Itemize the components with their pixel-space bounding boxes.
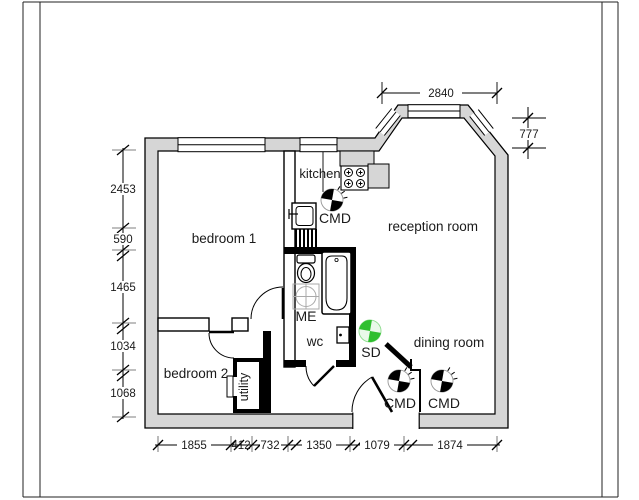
label-dining: dining room: [414, 335, 485, 350]
label-cmd-hall: CMD: [384, 395, 416, 411]
dim-1465: 1465: [110, 282, 136, 294]
label-wc: wc: [306, 334, 324, 349]
dim-1068: 1068: [110, 388, 136, 400]
dim-1874: 1874: [437, 440, 463, 452]
dimension-bay-depth: 777: [512, 107, 546, 159]
dim-777: 777: [519, 129, 538, 141]
wall-bedroom-divider: [158, 318, 209, 331]
bathtub-icon: [322, 252, 351, 314]
dim-1350: 1350: [306, 440, 332, 452]
toilet-icon: [297, 255, 315, 283]
dimension-left-chain: 2453 590 1465 1034 1068: [106, 145, 140, 422]
hob-icon: [341, 166, 368, 190]
wall-wc-south-left: [284, 360, 306, 367]
label-sd: SD: [361, 344, 380, 360]
dim-1079: 1079: [364, 440, 390, 452]
dim-590: 590: [113, 234, 132, 246]
label-reception: reception room: [388, 219, 478, 234]
label-utility: utility: [237, 372, 251, 401]
chimney-breast-lower: [368, 164, 389, 188]
dim-2453: 2453: [110, 184, 136, 196]
wall-pillar: [232, 318, 248, 331]
window-bay-front: [408, 105, 460, 118]
label-cmd-kitchen: CMD: [319, 210, 351, 226]
entrance-opening: [353, 413, 419, 430]
dim-1855: 1855: [181, 440, 207, 452]
window-bedroom1: [178, 138, 265, 152]
dim-412: 412: [231, 440, 250, 452]
label-bedroom2: bedroom 2: [164, 366, 229, 381]
dim-2840: 2840: [428, 88, 454, 100]
wall-wc-south-right: [336, 360, 356, 367]
dim-732: 732: [260, 440, 279, 452]
dimension-top: 2840: [377, 82, 502, 104]
dimension-bottom-chain: 1855 412 732 1350 1079 1874: [153, 436, 502, 452]
label-meter: ME: [296, 308, 317, 324]
floor-plan-page: kitchen bedroom 1 reception room ME wc d…: [0, 0, 639, 500]
floor-plan-drawing: kitchen bedroom 1 reception room ME wc d…: [0, 0, 639, 500]
wc-cupboard-icon: [337, 327, 349, 343]
dim-1034: 1034: [110, 341, 136, 353]
label-bedroom1: bedroom 1: [192, 231, 257, 246]
sink-icon: [289, 203, 316, 229]
wall-bedroom1-east: [284, 151, 295, 367]
label-cmd-dining: CMD: [428, 395, 460, 411]
window-kitchen: [300, 138, 337, 152]
label-kitchen: kitchen: [299, 166, 340, 181]
wall-bedroom2-east: [263, 331, 271, 413]
